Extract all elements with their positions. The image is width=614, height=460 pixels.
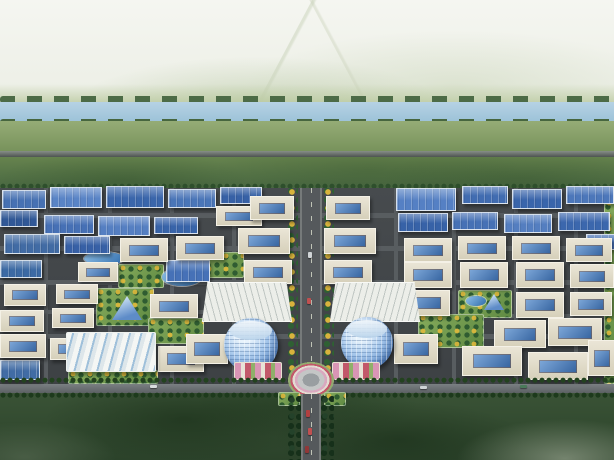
exhibition-hall — [66, 332, 156, 372]
courtyard-glass-roof — [525, 269, 554, 281]
courtyard-glass-roof — [185, 243, 214, 254]
courtyard-glass-roof — [248, 235, 280, 247]
pond — [466, 296, 486, 306]
courtyard-glass-roof — [558, 326, 591, 339]
office-building — [0, 334, 46, 358]
courtyard-glass-roof — [473, 354, 510, 368]
factory-building — [2, 190, 46, 209]
courtyard-glass-roof — [335, 203, 362, 214]
courtyard-glass-roof — [333, 267, 362, 278]
factory-building — [452, 212, 498, 230]
landscaped-garden — [118, 264, 164, 288]
factory-building — [166, 260, 210, 282]
courtyard-glass-roof — [253, 267, 282, 278]
courtyard-glass-roof — [578, 299, 604, 310]
courtyard-glass-roof — [86, 268, 110, 277]
office-building — [244, 260, 292, 284]
office-building — [516, 262, 564, 288]
office-building — [78, 262, 118, 282]
courtyard-glass-roof — [334, 235, 366, 247]
factory-building — [396, 188, 456, 211]
courtyard-glass-roof — [129, 245, 158, 256]
courtyard-glass-roof — [413, 269, 442, 281]
car — [420, 386, 427, 389]
courtyard-glass-roof — [521, 243, 550, 254]
office-building — [394, 334, 438, 364]
car — [520, 385, 527, 388]
fan-building — [202, 282, 292, 322]
office-building — [570, 264, 614, 288]
forest-road-trees-east — [321, 396, 334, 460]
office-building — [326, 196, 370, 220]
courtyard-glass-roof — [413, 245, 442, 256]
meadow — [0, 121, 614, 155]
office-building — [460, 262, 508, 288]
office-building — [462, 346, 522, 376]
factory-building — [566, 186, 614, 204]
courtyard-glass-roof — [225, 212, 253, 221]
courtyard-glass-roof — [9, 341, 37, 352]
factory-building — [512, 189, 562, 209]
factory-building — [64, 236, 110, 254]
factory-building — [106, 186, 164, 208]
car — [308, 252, 312, 258]
factory-building — [44, 215, 94, 234]
courtyard-glass-roof — [575, 245, 603, 256]
factory-building — [50, 187, 102, 208]
courtyard-glass-roof — [60, 314, 86, 323]
courtyard-glass-roof — [9, 316, 36, 326]
factory-building — [168, 189, 216, 208]
office-building — [512, 236, 560, 260]
office-building — [250, 196, 294, 220]
courtyard-glass-roof — [579, 271, 606, 282]
courtyard-glass-roof — [504, 328, 536, 341]
office-building — [566, 238, 612, 262]
courtyard-glass-roof — [12, 290, 38, 300]
car — [308, 428, 312, 435]
courtyard-glass-roof — [159, 301, 188, 312]
car — [150, 385, 157, 388]
courtyard-glass-roof — [403, 342, 430, 356]
courtyard-glass-roof — [467, 243, 496, 254]
factory-building — [504, 214, 552, 233]
car — [305, 446, 309, 453]
courtyard-glass-roof — [469, 269, 498, 281]
factory-building — [558, 212, 610, 231]
courtyard-glass-roof — [594, 350, 611, 367]
fan-building — [330, 282, 420, 322]
south-approach-road — [301, 394, 321, 460]
office-building — [516, 292, 564, 318]
office-building — [324, 260, 372, 284]
office-building — [458, 236, 506, 260]
office-building — [56, 284, 98, 304]
office-building — [324, 228, 376, 254]
courtyard-glass-roof — [64, 290, 90, 299]
factory-building — [98, 216, 150, 236]
office-building — [404, 238, 452, 262]
office-building — [238, 228, 290, 254]
office-building — [528, 352, 588, 380]
office-building — [176, 236, 224, 260]
office-building — [120, 238, 168, 262]
courtyard-glass-roof — [525, 299, 554, 311]
office-building — [150, 294, 198, 318]
factory-building — [4, 234, 60, 254]
forest-road-trees-west — [288, 396, 301, 460]
render-stage: Aerial architectural rendering of a plan… — [0, 0, 614, 460]
courtyard-glass-roof — [259, 203, 286, 214]
factory-building — [398, 213, 448, 232]
factory-building — [0, 260, 42, 278]
office-building — [570, 292, 612, 316]
factory-building — [0, 210, 38, 227]
factory-building — [154, 217, 198, 234]
office-building — [186, 334, 228, 364]
car — [307, 298, 311, 304]
office-building — [494, 320, 546, 348]
factory-building — [462, 186, 508, 204]
office-building — [588, 340, 614, 376]
car — [306, 410, 310, 417]
office-building — [0, 310, 44, 332]
courtyard-glass-roof — [194, 342, 220, 356]
courtyard-glass-roof — [539, 360, 576, 373]
office-building — [52, 308, 94, 328]
central-boulevard — [300, 188, 322, 384]
office-building — [4, 284, 46, 306]
